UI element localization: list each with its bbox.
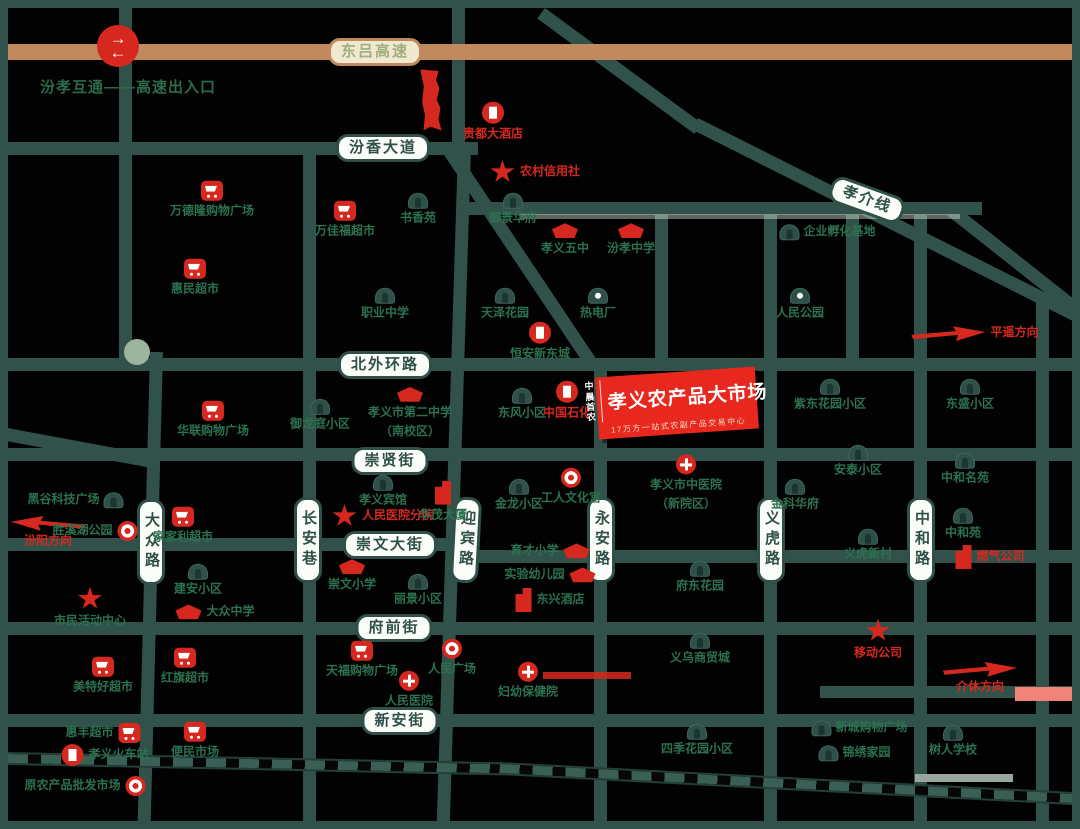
building-icon [688,725,706,739]
map-frame-left [0,0,8,829]
building-icon [589,289,607,303]
building-icon [812,721,830,735]
direction-arrow-icon [943,661,1017,677]
shopping-cart-icon [174,648,196,668]
road-label-chongxian: 崇贤街 [351,447,428,475]
hospital-cross-icon [399,671,419,691]
hospital-cross-icon [676,454,696,474]
poi-residence: 中和苑 [945,509,981,542]
poi-park: 人民公园 [776,289,824,322]
building-icon [944,726,962,740]
school-cap-icon [552,223,578,238]
expressway [0,44,1080,60]
poi-school: 树人学校 [929,726,977,759]
poi-direction-southeast: 介休方向 [943,661,1017,696]
poi-civic-center: 市民活动中心 [54,587,126,630]
building-icon [189,565,207,579]
shopping-cart-icon [201,181,223,201]
map-frame-right [1072,0,1080,829]
poi-residence: 金科华府 [771,480,819,513]
poi-old-market: 原农产品批发市场 [24,776,145,796]
poi-market: 便民市场 [171,722,219,761]
building-icon [819,746,837,760]
red-building-icon [435,481,451,505]
shopping-cart-icon [119,723,141,743]
poi-hospital: 孝义市中医院（新院区） [650,454,722,511]
road-right-vertical [1036,300,1049,824]
poi-residence: 府东花园 [676,562,724,595]
poi-mall: 新城购物广场 [812,720,907,736]
poi-incubator: 企业孵化基地 [780,224,875,240]
hotel-building-icon [529,322,551,344]
road-label-chongwen: 崇文大街 [343,531,437,559]
poi-supermarket: 华联购物广场 [177,401,249,440]
road-changan [303,148,316,824]
poi-residence: 东风小区 [498,389,546,422]
poi-school: 孝义市第二中学（南校区） [368,387,452,439]
star-icon [77,587,102,611]
pink-bar [1015,687,1077,701]
building-icon [496,289,514,303]
building-icon [105,493,123,507]
poi-school: 孝义五中 [541,223,589,257]
poi-tech-plaza: 黑谷科技广场 [27,492,122,508]
poi-residence: 天泽花园 [481,289,529,322]
poi-utility: 燃气公司 [955,545,1024,569]
building-icon [409,194,427,208]
poi-company: 移动公司 [854,619,902,662]
poi-residence: 紫东花园小区 [794,380,866,413]
market-logo: 中晨 首农 [584,381,603,423]
poi-bank: 农村信用社 [490,160,580,184]
poi-supermarket: 美特好超市 [73,657,133,696]
direction-arrow-icon [911,325,985,341]
poi-park: 胜溪湖公园 [52,521,137,541]
poi-hotel: 贵都大酒店 [463,102,523,143]
poi-residence: 中和名苑 [941,454,989,487]
shopping-cart-icon [334,201,356,221]
map-frame-top [0,0,1080,8]
road-label-xinan: 新安街 [361,707,438,735]
building-icon [510,480,528,494]
building-icon [513,389,531,403]
shopping-cart-icon [184,259,206,279]
poi-residence: 御景华府 [489,194,537,227]
hotel-building-icon [482,102,504,124]
poi-residence: 丽景小区 [394,575,442,608]
poi-plaza: 人民广场 [428,639,476,678]
hotel-building-icon [61,744,83,766]
road-label-beiwaihuan: 北外环路 [338,351,432,379]
building-icon [849,446,867,460]
poi-kindergarten: 实验幼儿园 [504,567,595,583]
poi-supermarket: 红旗超市 [161,648,209,687]
building-icon [780,225,798,239]
building-icon [691,634,709,648]
market-title: 孝义农产品大市场 [607,376,769,414]
poi-supermarket: 万佳福超市 [315,201,375,240]
road-label-changan: 长安巷 [294,497,322,583]
poi-hotel: 东兴酒店 [515,588,584,612]
poi-trade-city: 义乌商贸城 [670,634,730,667]
star-icon [332,504,357,528]
poi-supermarket: 万德隆购物广场 [170,181,254,220]
red-banner-icon [420,69,441,132]
poi-plant: 热电厂 [580,289,616,322]
platform-bar [915,774,1013,782]
building-icon [961,380,979,394]
highway-interchange-icon [97,25,139,67]
target-circle-icon [118,521,138,541]
market-billboard: 中晨 首农 孝义农产品大市场 17万方一站式农副产品交易中心 [595,366,759,439]
school-cap-icon [564,544,590,559]
poi-hospital: 人民医院 [385,671,433,710]
building-icon [821,380,839,394]
market-logo-bottom: 首农 [586,402,596,423]
shopping-cart-icon [92,657,114,677]
star-icon [490,160,515,184]
poi-residence: 东盛小区 [946,380,994,413]
building-icon [956,454,974,468]
shopping-cart-icon [184,722,206,742]
school-cap-icon [175,605,201,620]
poi-residence: 金龙小区 [495,480,543,513]
road-label-fuqian: 府前街 [355,614,432,642]
building-icon [786,480,804,494]
interchange-note: 汾孝互通——高速出入口 [40,76,216,97]
building-icon [311,400,329,414]
road-xiaojie-upper [537,8,702,134]
poi-hospital: 妇幼保健院 [498,662,558,701]
poi-residence: 安泰小区 [834,446,882,479]
school-cap-icon [618,223,644,238]
star-icon [865,619,890,643]
city-map: 东吕高速 汾香大道 孝介线 北外环路 崇贤街 崇文大街 府前街 新安街 大众路 … [0,0,1080,829]
shopping-cart-icon [351,641,373,661]
map-frame-bottom [0,821,1080,829]
poi-school: 大众中学 [175,604,254,620]
road-label-zhonghe: 中和路 [907,497,935,583]
poi-supermarket: 家家利超市 [153,507,213,546]
hospital-cross-icon [518,662,538,682]
poi-residence: 锦绣家园 [819,745,890,761]
poi-supermarket: 惠民超市 [171,259,219,298]
poi-railway-station: 孝义火车站 [61,744,148,766]
building-icon [374,476,392,490]
school-cap-icon [570,568,596,583]
building-icon [376,289,394,303]
building-icon [859,530,877,544]
hotel-building-icon [556,381,578,403]
shopping-cart-icon [202,401,224,421]
poi-residence: 恒安新东城 [510,322,570,363]
road-yongan-north [655,208,668,365]
school-cap-icon [339,559,365,574]
target-circle-icon [126,776,146,796]
poi-residence: 御龙庭小区 [290,400,350,433]
poi-school: 崇文小学 [328,559,376,593]
poi-culture-hall: 工人文化宫 [541,468,601,507]
poi-residence: 义虎新村 [844,530,892,563]
poi-supermarket: 惠丰超市 [65,723,140,743]
poi-school: 职业中学 [361,289,409,322]
building-icon [691,562,709,576]
building-icon [504,194,522,208]
shopping-cart-icon [172,507,194,527]
poi-direction-northeast: 平遥方向 [911,325,1038,341]
target-circle-icon [561,468,581,488]
poi-residence: 四季花园小区 [661,725,733,758]
school-cap-icon [397,387,423,402]
red-building-icon [955,545,971,569]
poi-school: 育才小学 [510,543,589,559]
red-building-icon [515,588,531,612]
road-label-fenxiang: 汾香大道 [336,134,430,162]
target-circle-icon [442,639,462,659]
poi-residence: 书香苑 [400,194,436,227]
poi-tower: 华茂大厦 [419,481,467,524]
poi-school: 汾孝中学 [607,223,655,257]
building-icon [409,575,427,589]
building-icon [791,289,809,303]
market-logo-top: 中晨 [584,381,594,402]
railway-east [499,762,1079,805]
roundabout [124,339,150,365]
building-icon [954,509,972,523]
poi-residence: 建安小区 [174,565,222,598]
road-label-donglv-expressway: 东吕高速 [328,38,422,66]
